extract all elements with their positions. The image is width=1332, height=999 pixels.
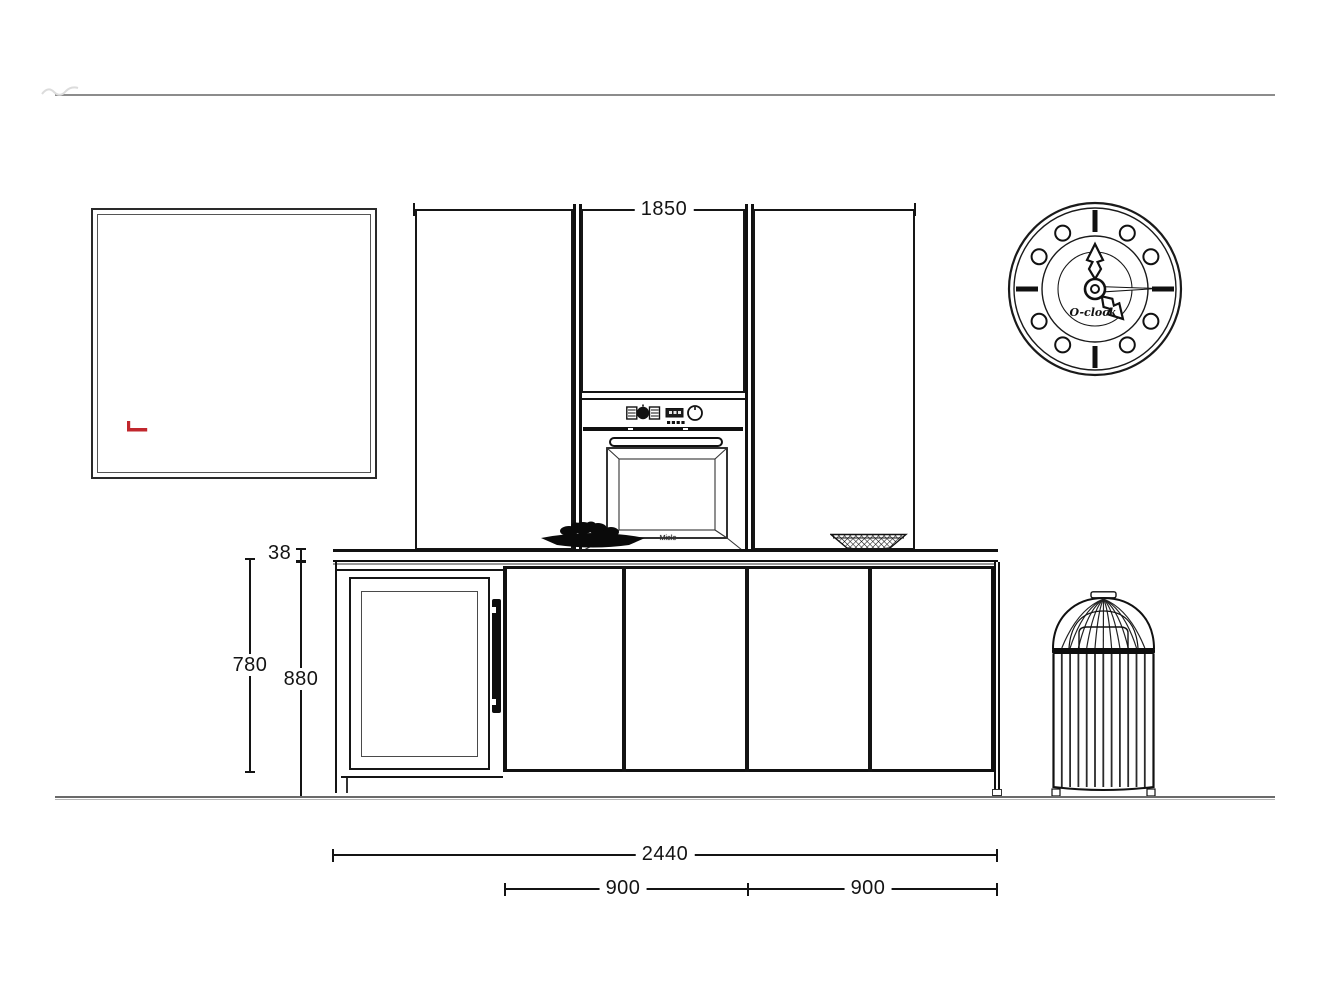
base-door-divider-1 [622,566,626,772]
dimension-label-900-right[interactable]: 900 [845,877,892,899]
clock-brand-label: O-clock [1069,306,1116,319]
oven-tower-upper-door[interactable] [581,209,745,393]
window-frame-inner-border [97,214,371,473]
dim-900-tick-left [504,883,506,896]
ceiling-line [55,94,1275,96]
fruit-bowl-icon[interactable] [541,520,645,551]
dim-38-tick-top [296,548,306,550]
oven-control-panel[interactable] [626,404,706,426]
base-door-divider-3 [868,566,872,772]
base-right-foot [992,789,1002,796]
door-handle-bar[interactable] [492,599,501,713]
window-frame[interactable] [91,208,377,479]
dim-1850-tick-right [914,203,916,216]
red-corner-mark [126,420,150,434]
dim-900-tick-right [996,883,998,896]
dim-1850-tick-left [413,203,415,216]
dimension-label-900-left[interactable]: 900 [600,877,647,899]
wire-basket-icon[interactable] [830,533,908,552]
handle-standoff-gap [492,607,496,613]
base-left-plinth-line [346,778,348,793]
oven-left-knob-icon [637,407,649,419]
tall-cabinet-right-door[interactable] [753,209,915,550]
wall-clock[interactable]: O-clock [1007,201,1183,377]
worktop-shadow-line [333,563,998,565]
dim-900-line [505,888,997,890]
tall-cabinet-left-door[interactable] [415,209,573,550]
base-left-side-panel [335,562,337,793]
base-door-run[interactable] [503,566,995,772]
dimension-label-1850[interactable]: 1850 [635,198,694,220]
dim-2440-tick-left [332,849,334,862]
floor-line [55,796,1275,798]
trash-body-ribs [1062,654,1145,787]
base-left-framed-door[interactable] [349,577,490,770]
kitchen-elevation-drawing: Miele 1850 [0,0,1332,999]
dimension-label-38[interactable]: 38 [266,542,293,564]
handle-standoff-gap [492,699,496,705]
base-left-bottom-line [341,776,503,778]
trash-can[interactable] [1051,591,1156,799]
base-door-divider-2 [745,566,749,772]
dim-880-tick-top [296,561,306,563]
base-right-side-panel [994,562,1000,794]
dim-900-tick-middle [747,883,749,896]
dimension-label-780[interactable]: 780 [227,654,274,676]
dim-2440-tick-right [996,849,998,862]
base-left-door-inner-panel [361,591,478,757]
oven-top-line [581,398,745,400]
base-left-top-line [337,569,503,571]
oven-brand-label: Miele [645,535,691,543]
dimension-label-880[interactable]: 880 [278,668,325,690]
dim-780-tick-top [245,558,255,560]
wall-line-artifact [40,82,80,98]
dimension-label-2440[interactable]: 2440 [636,843,695,865]
floor-line-shadow [55,799,1275,800]
dim-780-tick-bottom [245,771,255,773]
